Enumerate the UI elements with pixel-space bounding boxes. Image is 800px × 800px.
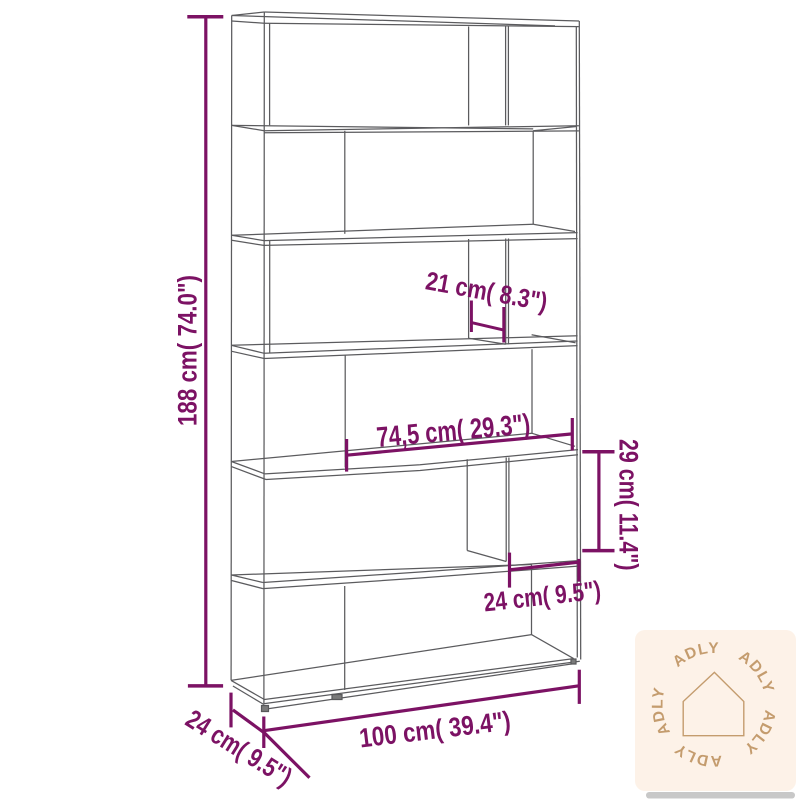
svg-text:188 cm( 74.0"): 188 cm( 74.0")	[173, 275, 203, 426]
svg-text:29 cm( 11.4"): 29 cm( 11.4")	[614, 439, 644, 571]
